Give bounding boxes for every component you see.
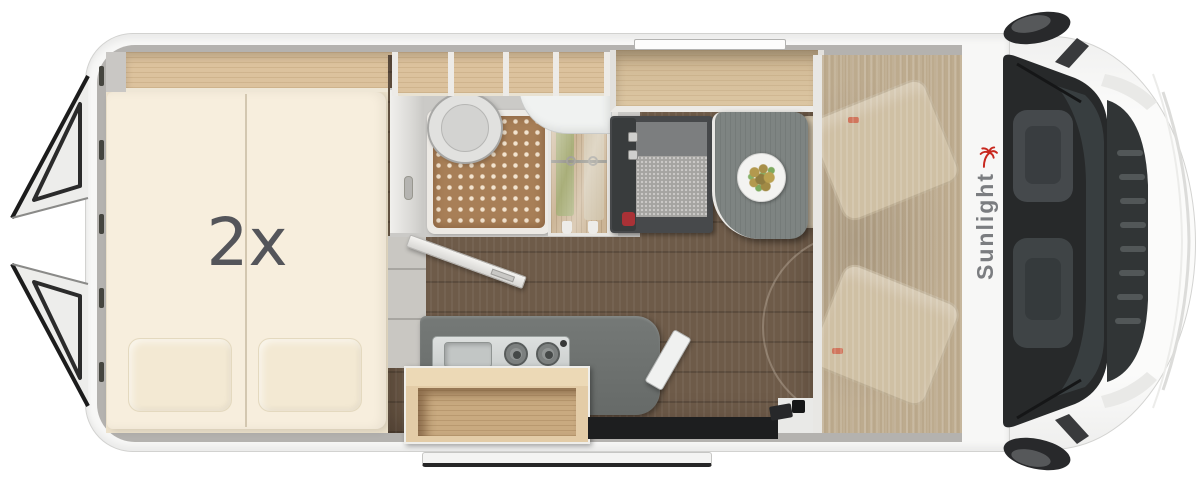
rear-doors-open-icon: [0, 0, 115, 482]
hood-grille: [1107, 100, 1148, 382]
overhead-shelf-bed: [126, 52, 392, 92]
burner-center: [545, 351, 553, 359]
bathroom-door-handle: [404, 176, 413, 200]
bench-upper-cushion: [636, 122, 707, 156]
seatbelt-buckle: [622, 212, 635, 226]
shelf-end-cap: [106, 52, 126, 92]
wardrobe-peg: [588, 221, 598, 234]
kitchen-sink-bowl: [444, 342, 492, 368]
toilet-bowl: [441, 104, 489, 152]
pillow: [258, 338, 362, 412]
door-lock-hardware: [770, 397, 808, 425]
hob-burner: [536, 342, 560, 366]
plate-food: [744, 160, 779, 195]
shelf-divider: [503, 52, 509, 96]
bench-seat-cushion: [636, 156, 707, 217]
burner-center: [513, 351, 521, 359]
shelf-divider: [392, 52, 398, 96]
bench-hinge: [628, 132, 638, 142]
kitchen-shelf-top: [406, 368, 588, 386]
overhead-shelf-dinette: [610, 50, 824, 112]
lock-part: [769, 403, 793, 421]
hob-burner: [504, 342, 528, 366]
kitchen-shelf-opening: [418, 388, 576, 436]
camper-floorplan: 2x: [0, 0, 1200, 482]
overhead-shelf-bathroom: [392, 52, 610, 96]
shelf-divider: [553, 52, 559, 96]
shelf-divider: [448, 52, 454, 96]
lock-part: [792, 400, 805, 413]
hob-knob: [560, 340, 567, 347]
pillow: [128, 338, 232, 412]
roof-window: [634, 39, 786, 50]
sliding-door-rail: [422, 452, 712, 467]
cab-roof-overlay: [822, 55, 962, 433]
vehicle-front: [985, 0, 1200, 482]
bed-quantity-label: 2x: [172, 198, 322, 288]
panel-seam: [388, 268, 426, 270]
wardrobe-peg: [562, 221, 572, 234]
bench-hinge: [628, 150, 638, 160]
bathroom-wall-panel: [390, 90, 424, 233]
cab-area: [822, 55, 962, 433]
cab-bulkhead-trim: [813, 55, 822, 433]
sliding-door-opening: [588, 417, 778, 439]
